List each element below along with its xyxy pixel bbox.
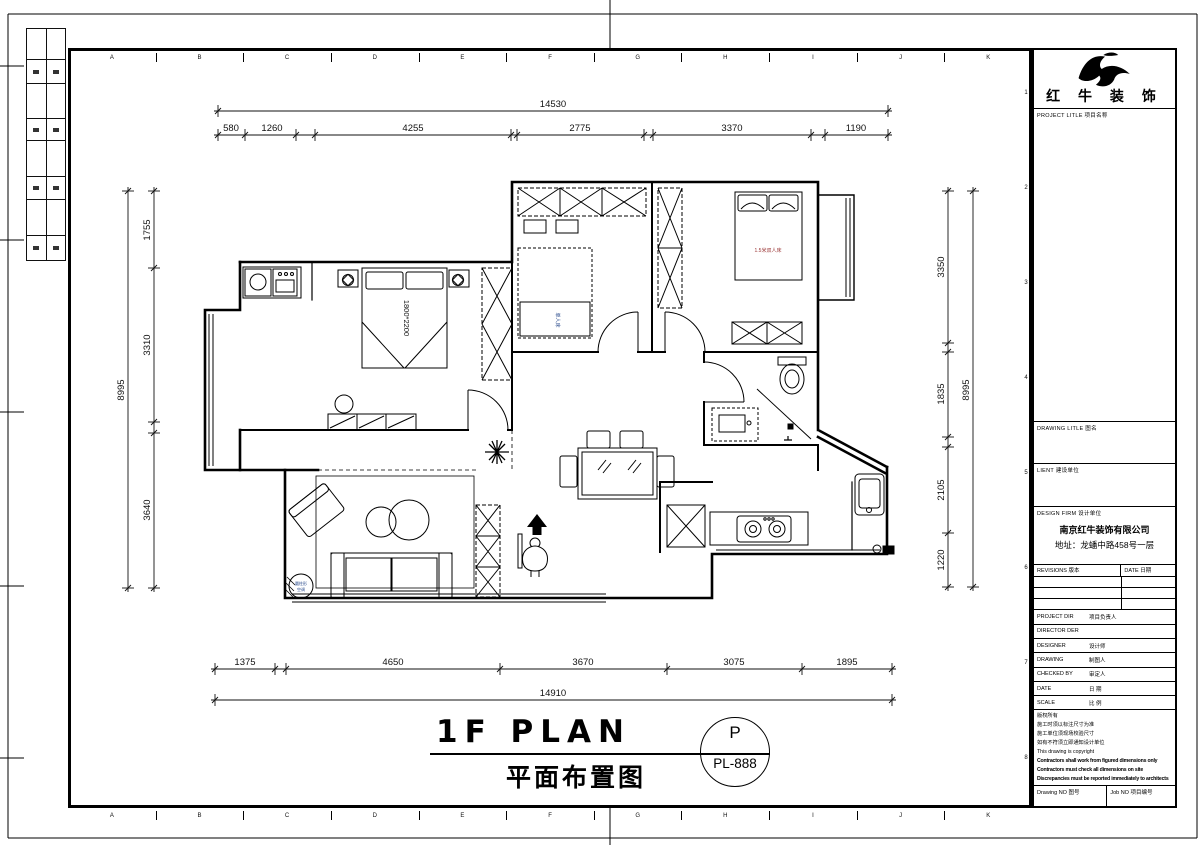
- company-name: 红 牛 装 饰: [1046, 86, 1163, 106]
- grid-letter: C: [243, 51, 331, 65]
- grid-number: 2: [1021, 185, 1031, 191]
- grid-letter: B: [156, 809, 244, 823]
- signature-rows: PROJECT DIR项目负责人DIRECTOR DERDESIGNER设计师D…: [1034, 610, 1175, 710]
- revision-rows: [1034, 577, 1175, 610]
- grid-number: 4: [1021, 375, 1031, 381]
- grid-number: 6: [1021, 565, 1031, 571]
- fold-strip-table: [26, 28, 66, 261]
- grid-letter: J: [857, 51, 945, 65]
- plan-title-cn: 平面布置图: [506, 758, 646, 794]
- grid-letter: G: [594, 51, 682, 65]
- stamp-number: PL-888: [701, 756, 769, 771]
- grid-letter: A: [68, 809, 156, 823]
- grid-letter: D: [331, 809, 419, 823]
- grid-letters-top: ABCDEFGHIJK: [68, 51, 1032, 65]
- grid-letter: G: [594, 809, 682, 823]
- sheet-border-frame: [68, 48, 1032, 808]
- grid-letter: I: [769, 51, 857, 65]
- design-firm-box: DESIGN FIRM 设计单位 南京红牛装饰有限公司 地址：龙蟠中路458号一…: [1034, 507, 1175, 566]
- client-box: LIENT 建设单位: [1034, 464, 1175, 507]
- drawing-title-box: DRAWING LITLE 图名: [1034, 422, 1175, 464]
- grid-letter: F: [506, 809, 594, 823]
- firm-address: 地址：龙蟠中路458号一层: [1034, 539, 1175, 551]
- grid-number: 7: [1021, 660, 1031, 666]
- titleblock-row: DRAWING制图人: [1034, 653, 1175, 667]
- grid-letter: D: [331, 51, 419, 65]
- drawing-sheet: 1800*2200 单人床 1.5米双人床: [0, 0, 1200, 845]
- project-title-box: PROJECT LITLE 项目名称: [1034, 109, 1175, 422]
- company-logo-section: 红 牛 装 饰: [1034, 50, 1175, 109]
- grid-letter: E: [419, 51, 507, 65]
- grid-letters-bottom: ABCDEFGHIJK: [68, 809, 1032, 823]
- stamp-letter: P: [701, 723, 769, 743]
- grid-letter: K: [944, 809, 1032, 823]
- bull-logo-icon: [1068, 50, 1142, 88]
- grid-letter: A: [68, 51, 156, 65]
- grid-letter: E: [419, 809, 507, 823]
- grid-letter: C: [243, 809, 331, 823]
- titleblock-row: DATE日 期: [1034, 682, 1175, 696]
- drawing-number-row: Drawing NO 图号 Job NO 项目编号: [1034, 786, 1175, 806]
- grid-number: 8: [1021, 755, 1031, 761]
- drawing-number-stamp: P PL-888: [700, 717, 770, 787]
- titleblock-row: CHECKED BY审定人: [1034, 668, 1175, 682]
- revisions-header: REVISIONS 版本 DATE 日期: [1034, 565, 1175, 577]
- grid-letter: F: [506, 51, 594, 65]
- grid-letter: H: [681, 809, 769, 823]
- grid-number: 3: [1021, 280, 1031, 286]
- grid-letter: J: [857, 809, 945, 823]
- title-block: 红 牛 装 饰 PROJECT LITLE 项目名称 DRAWING LITLE…: [1032, 48, 1177, 808]
- grid-number: 5: [1021, 470, 1031, 476]
- stamp-divider: [701, 753, 769, 755]
- copyright-notes: 版权所有施工时须以标注尺寸为准施工单位须现场校验尺寸如有不符须立即通知设计单位T…: [1034, 710, 1175, 786]
- grid-number: 1: [1021, 90, 1031, 96]
- titleblock-row: DESIGNER设计师: [1034, 639, 1175, 653]
- firm-name: 南京红牛装饰有限公司: [1034, 523, 1175, 536]
- titleblock-row: SCALE比 例: [1034, 696, 1175, 710]
- grid-letter: K: [944, 51, 1032, 65]
- titleblock-row: DIRECTOR DER: [1034, 625, 1175, 639]
- plan-title-en: 1F PLAN: [436, 714, 631, 750]
- grid-letter: B: [156, 51, 244, 65]
- grid-letter: I: [769, 809, 857, 823]
- titleblock-row: PROJECT DIR项目负责人: [1034, 610, 1175, 624]
- grid-letter: H: [681, 51, 769, 65]
